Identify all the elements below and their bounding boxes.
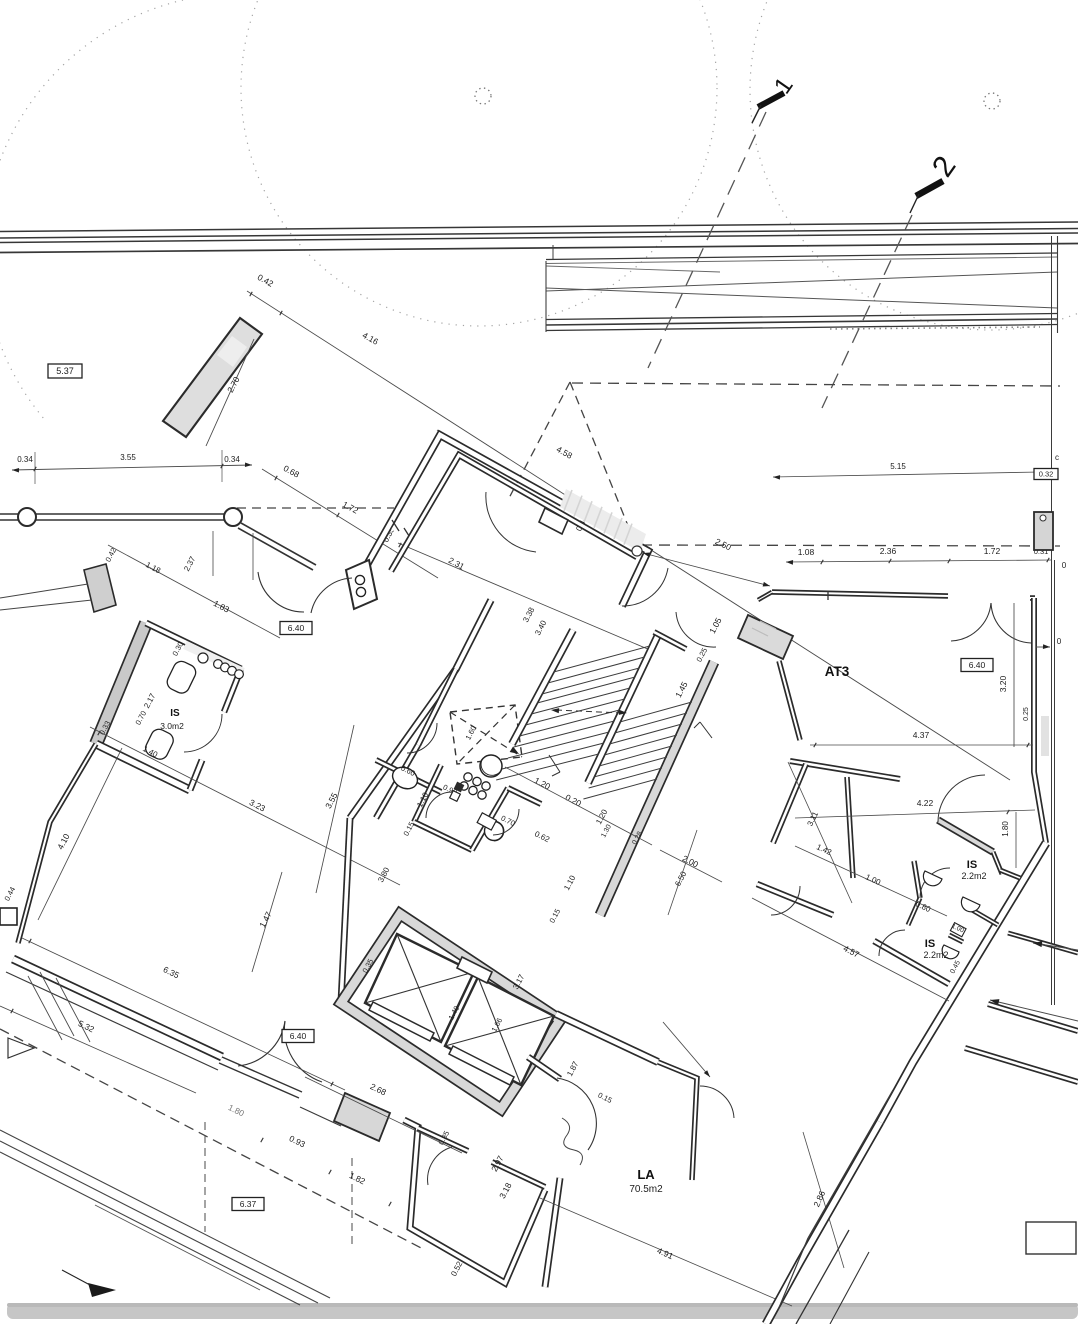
svg-text:5.15: 5.15 (890, 462, 906, 471)
svg-text:1.08: 1.08 (798, 547, 815, 557)
svg-text:IS: IS (170, 708, 180, 719)
svg-text:IS: IS (967, 859, 977, 871)
svg-text:2.2m2: 2.2m2 (923, 950, 948, 960)
svg-text:LA: LA (637, 1167, 655, 1182)
svg-text:4.22: 4.22 (917, 798, 934, 808)
svg-text:3.0m2: 3.0m2 (160, 721, 184, 731)
svg-text:6.40: 6.40 (969, 660, 986, 670)
svg-text:5.37: 5.37 (56, 366, 74, 376)
svg-text:6.40: 6.40 (290, 1031, 307, 1041)
svg-text:6.40: 6.40 (288, 623, 305, 633)
svg-text:0: 0 (1062, 561, 1067, 570)
svg-text:70.5m2: 70.5m2 (629, 1184, 663, 1195)
svg-text:AT3: AT3 (825, 664, 850, 679)
svg-text:IS: IS (925, 938, 935, 950)
svg-text:6.37: 6.37 (240, 1199, 257, 1209)
svg-text:4.37: 4.37 (913, 730, 930, 740)
svg-text:0.34: 0.34 (17, 455, 33, 464)
svg-text:3.20: 3.20 (998, 675, 1008, 692)
svg-text:0: 0 (1057, 637, 1062, 646)
svg-text:2.2m2: 2.2m2 (961, 871, 986, 881)
svg-text:c: c (1055, 453, 1059, 462)
svg-text:1.72: 1.72 (984, 546, 1001, 556)
svg-text:2.36: 2.36 (880, 546, 897, 556)
svg-text:0.25: 0.25 (1023, 707, 1030, 721)
svg-text:0.32: 0.32 (1039, 470, 1054, 479)
svg-text:1.80: 1.80 (1001, 821, 1010, 837)
svg-text:3.55: 3.55 (120, 453, 136, 462)
svg-text:0.34: 0.34 (224, 455, 240, 464)
